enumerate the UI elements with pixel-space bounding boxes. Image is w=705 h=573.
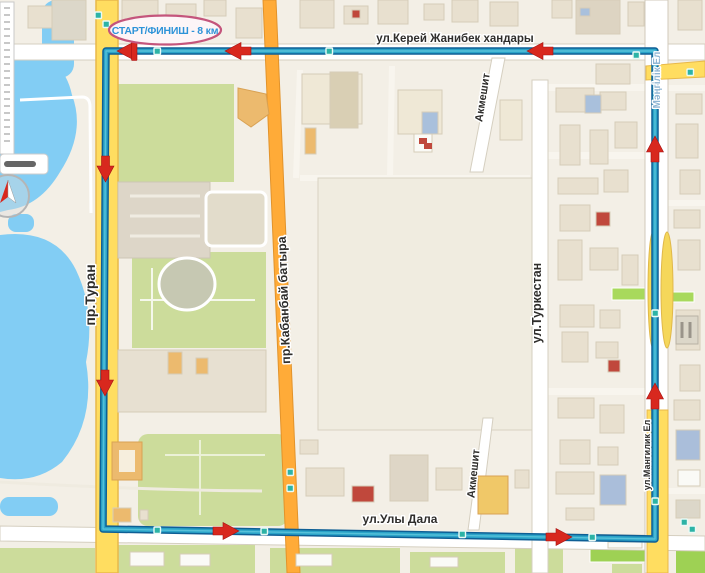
ruler-slider-handle[interactable]	[4, 161, 36, 167]
street-label-turan: пр.Туран	[82, 264, 98, 325]
start-finish-bar	[132, 42, 138, 61]
street-label-mangilik-el-road: Мәңгілік Ел	[652, 52, 663, 109]
street-label-mangilik-el: ул.Мангилик Ел	[642, 420, 652, 491]
street-label-turkestan: ул.Туркестан	[530, 263, 544, 343]
map-canvas: ул.Керей Жанибек хандары пр.Туран пр.Каб…	[0, 0, 705, 573]
street-label-uly-dala: ул.Улы Дала	[363, 512, 438, 526]
bubble-label: СТАРТ/ФИНИШ - 8 км	[112, 25, 219, 37]
start-finish-bubble: СТАРТ/ФИНИШ - 8 км	[109, 16, 221, 45]
road-median-lens	[661, 232, 673, 348]
route-map: ул.Керей Жанибек хандары пр.Туран пр.Каб…	[0, 0, 705, 573]
street-label-kerey-zhanibek: ул.Керей Жанибек хандары	[376, 33, 534, 45]
